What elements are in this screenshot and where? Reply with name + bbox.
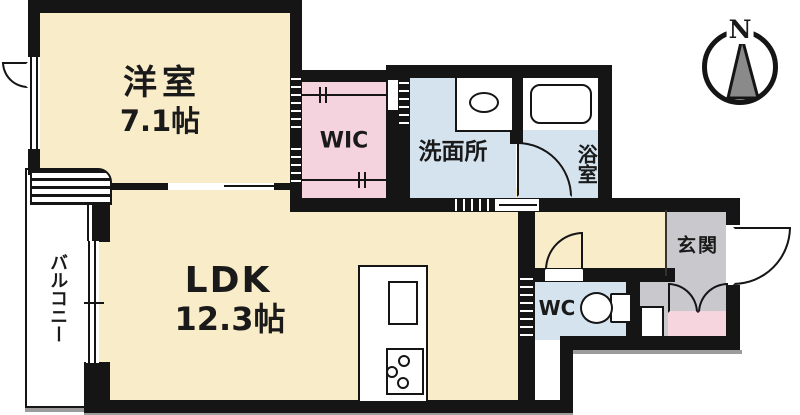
ldk-floor: [95, 188, 523, 404]
entrance-storage-box: [640, 306, 664, 338]
wall: [290, 70, 398, 82]
balcony-window-tick: [84, 302, 104, 304]
wall: [386, 65, 612, 78]
hanger-rail: [302, 179, 386, 181]
toilet-tank: [610, 293, 632, 323]
wall-shadow: [562, 350, 742, 354]
wall-hatch: [520, 278, 533, 338]
ldk-label: LDK: [185, 261, 272, 301]
kitchen-sink: [388, 281, 418, 325]
window-left-pane: [30, 57, 32, 149]
stove-burner: [397, 377, 409, 389]
stove-burner: [398, 355, 410, 367]
wall: [28, 0, 302, 13]
window-swing: [2, 62, 28, 88]
louver-panel: [30, 168, 112, 205]
hanger-rail-tick: [325, 87, 327, 103]
wall-hatch: [291, 148, 301, 186]
wc-door-opening: [545, 269, 583, 281]
sliding-door-track: [168, 183, 224, 190]
entrance-label: 玄関: [677, 235, 719, 256]
floor-plan: N 洋室 7.1帖 LDK 12.3帖 WIC 洗面所 浴室 バルコニー WC …: [0, 0, 800, 415]
wall: [598, 65, 612, 212]
entrance-step-pink: [668, 311, 726, 337]
bathroom-label: 浴室: [575, 144, 597, 184]
hanger-rail: [302, 94, 386, 96]
wall: [84, 362, 110, 403]
wall: [28, 0, 40, 59]
bathtub: [530, 84, 592, 124]
sliding-door-track: [455, 199, 497, 211]
hanger-rail-tick: [319, 87, 321, 103]
stove-burner: [386, 366, 398, 378]
ldk-area: 12.3帖: [175, 302, 286, 338]
western-room-area: 7.1帖: [120, 105, 200, 137]
toilet-bowl: [580, 292, 613, 324]
compass-north-label: N: [727, 16, 754, 44]
front-door-swing: [733, 227, 791, 285]
hanger-rail-tick: [358, 172, 360, 188]
balcony-label: バルコニー: [47, 253, 67, 343]
wic-label: WIC: [320, 130, 369, 155]
window-left-pane: [36, 57, 38, 149]
washroom-door-panel: [499, 204, 537, 206]
wic-opening: [388, 80, 398, 110]
wall: [560, 336, 740, 350]
wall-hatch: [291, 78, 301, 130]
wall-hatch: [399, 82, 409, 128]
wall-shadow: [25, 408, 85, 412]
hanger-rail-tick: [364, 172, 366, 188]
washroom-label: 洗面所: [419, 140, 488, 166]
wall: [84, 400, 573, 413]
western-room-label: 洋室: [123, 64, 201, 102]
wc-label: WC: [539, 297, 576, 319]
hall-entrance-divider: [665, 210, 667, 276]
sliding-door-panel: [224, 185, 274, 187]
washbasin: [469, 92, 499, 113]
wall: [92, 205, 110, 242]
